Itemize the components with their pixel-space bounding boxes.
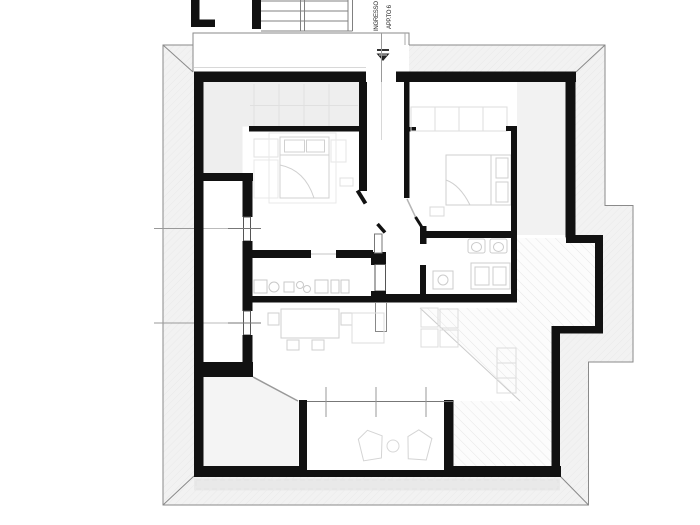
svg-text:APP.TO 6: APP.TO 6 <box>387 4 393 29</box>
svg-text:INGRESSO: INGRESSO <box>374 1 380 31</box>
